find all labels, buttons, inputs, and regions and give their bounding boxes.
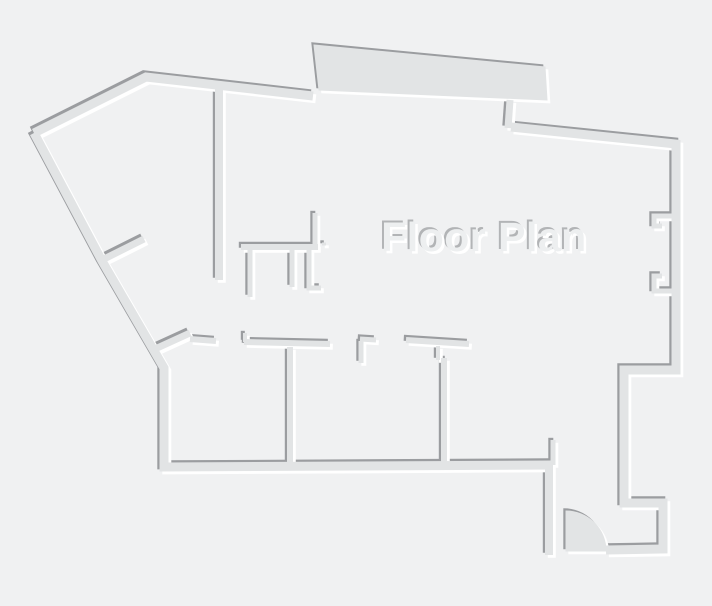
mid-row-l-bar [360, 339, 376, 340]
floor-plan-title: Floor Plan [381, 214, 586, 260]
floor-plan-label-group: Floor Plan Floor Plan Floor Plan [379, 212, 589, 263]
floor-plan-page: Floor Plan Floor Plan Floor Plan [0, 0, 712, 606]
mid-row-wall-right [406, 340, 469, 344]
mid-row-wall-left [190, 339, 216, 341]
top-band-connector [508, 100, 510, 128]
floor-plan-drawing: Floor Plan Floor Plan Floor Plan [0, 0, 712, 606]
mid-row-wall-center [244, 342, 330, 344]
